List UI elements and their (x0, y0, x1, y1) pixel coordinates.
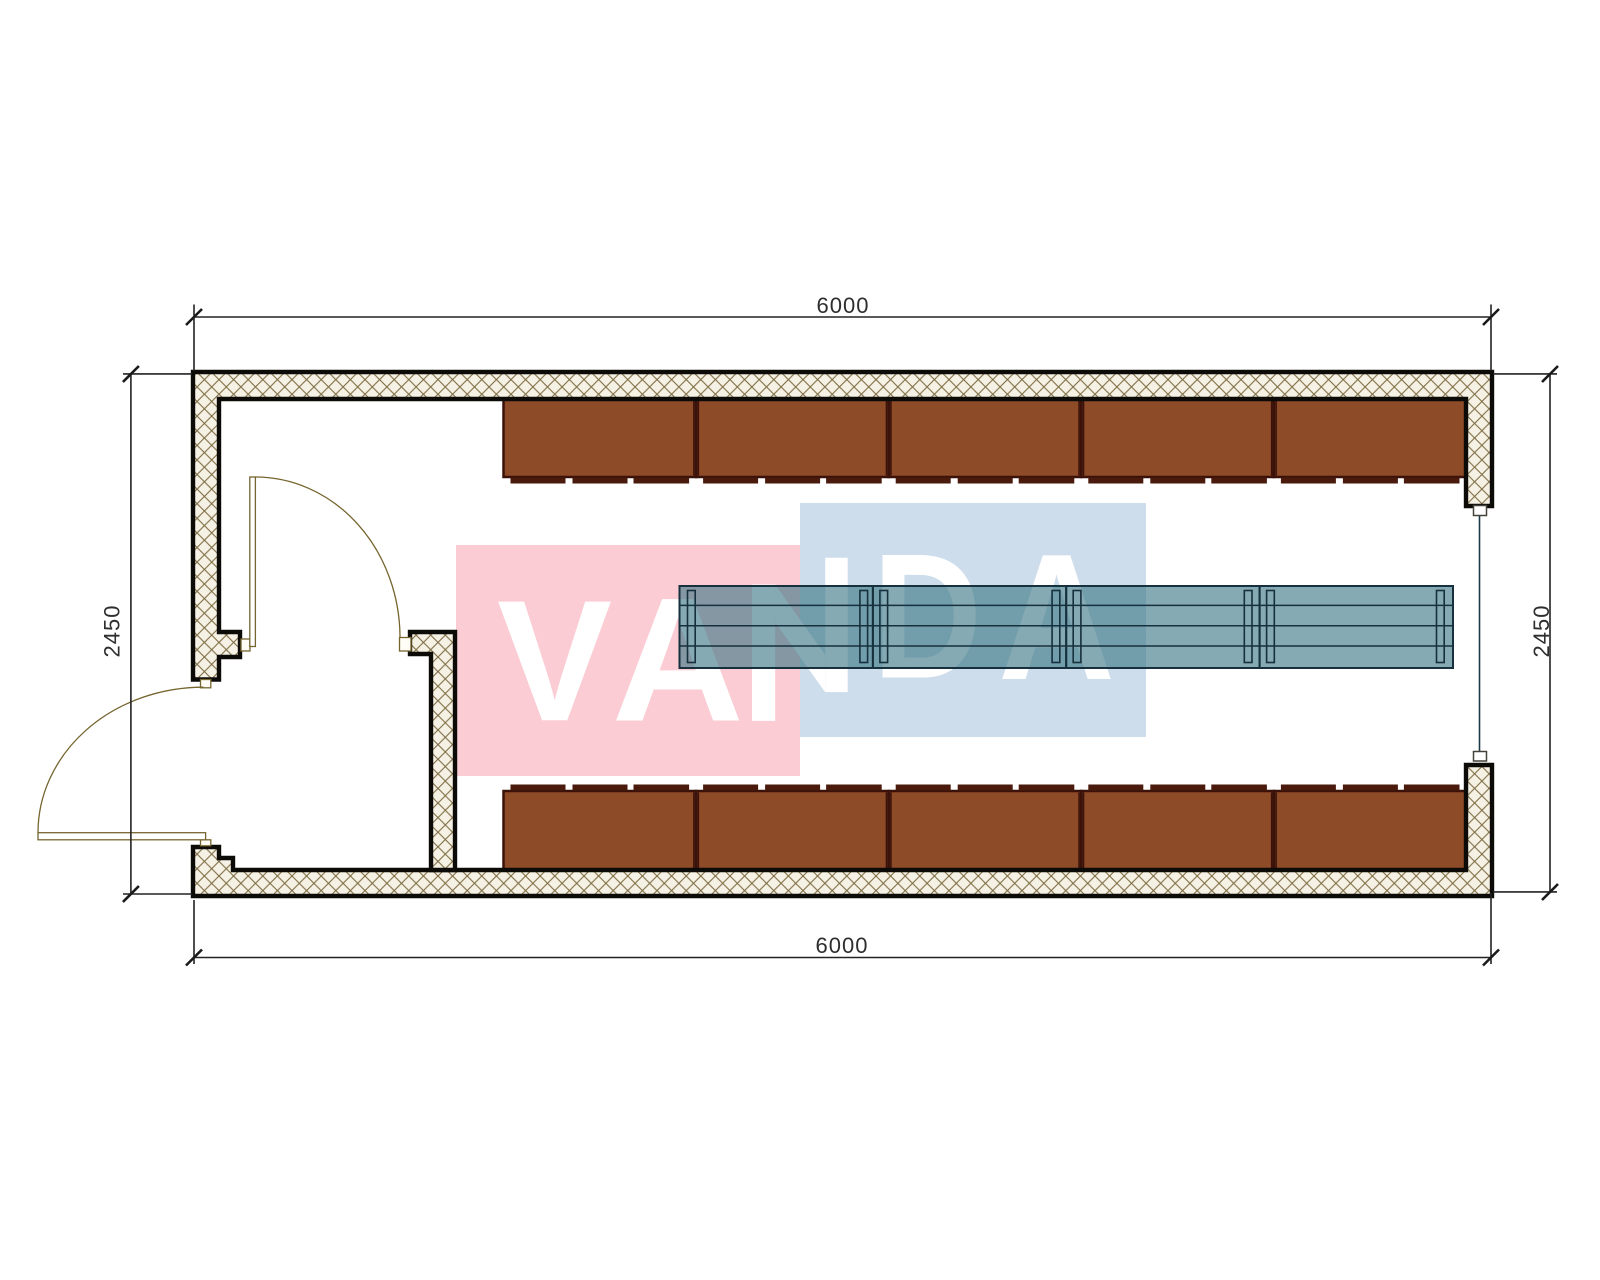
svg-text:6000: 6000 (817, 293, 870, 318)
svg-text:2450: 2450 (1529, 605, 1554, 658)
svg-text:6000: 6000 (816, 933, 869, 958)
svg-text:V: V (497, 564, 612, 757)
svg-text:2450: 2450 (100, 605, 125, 658)
